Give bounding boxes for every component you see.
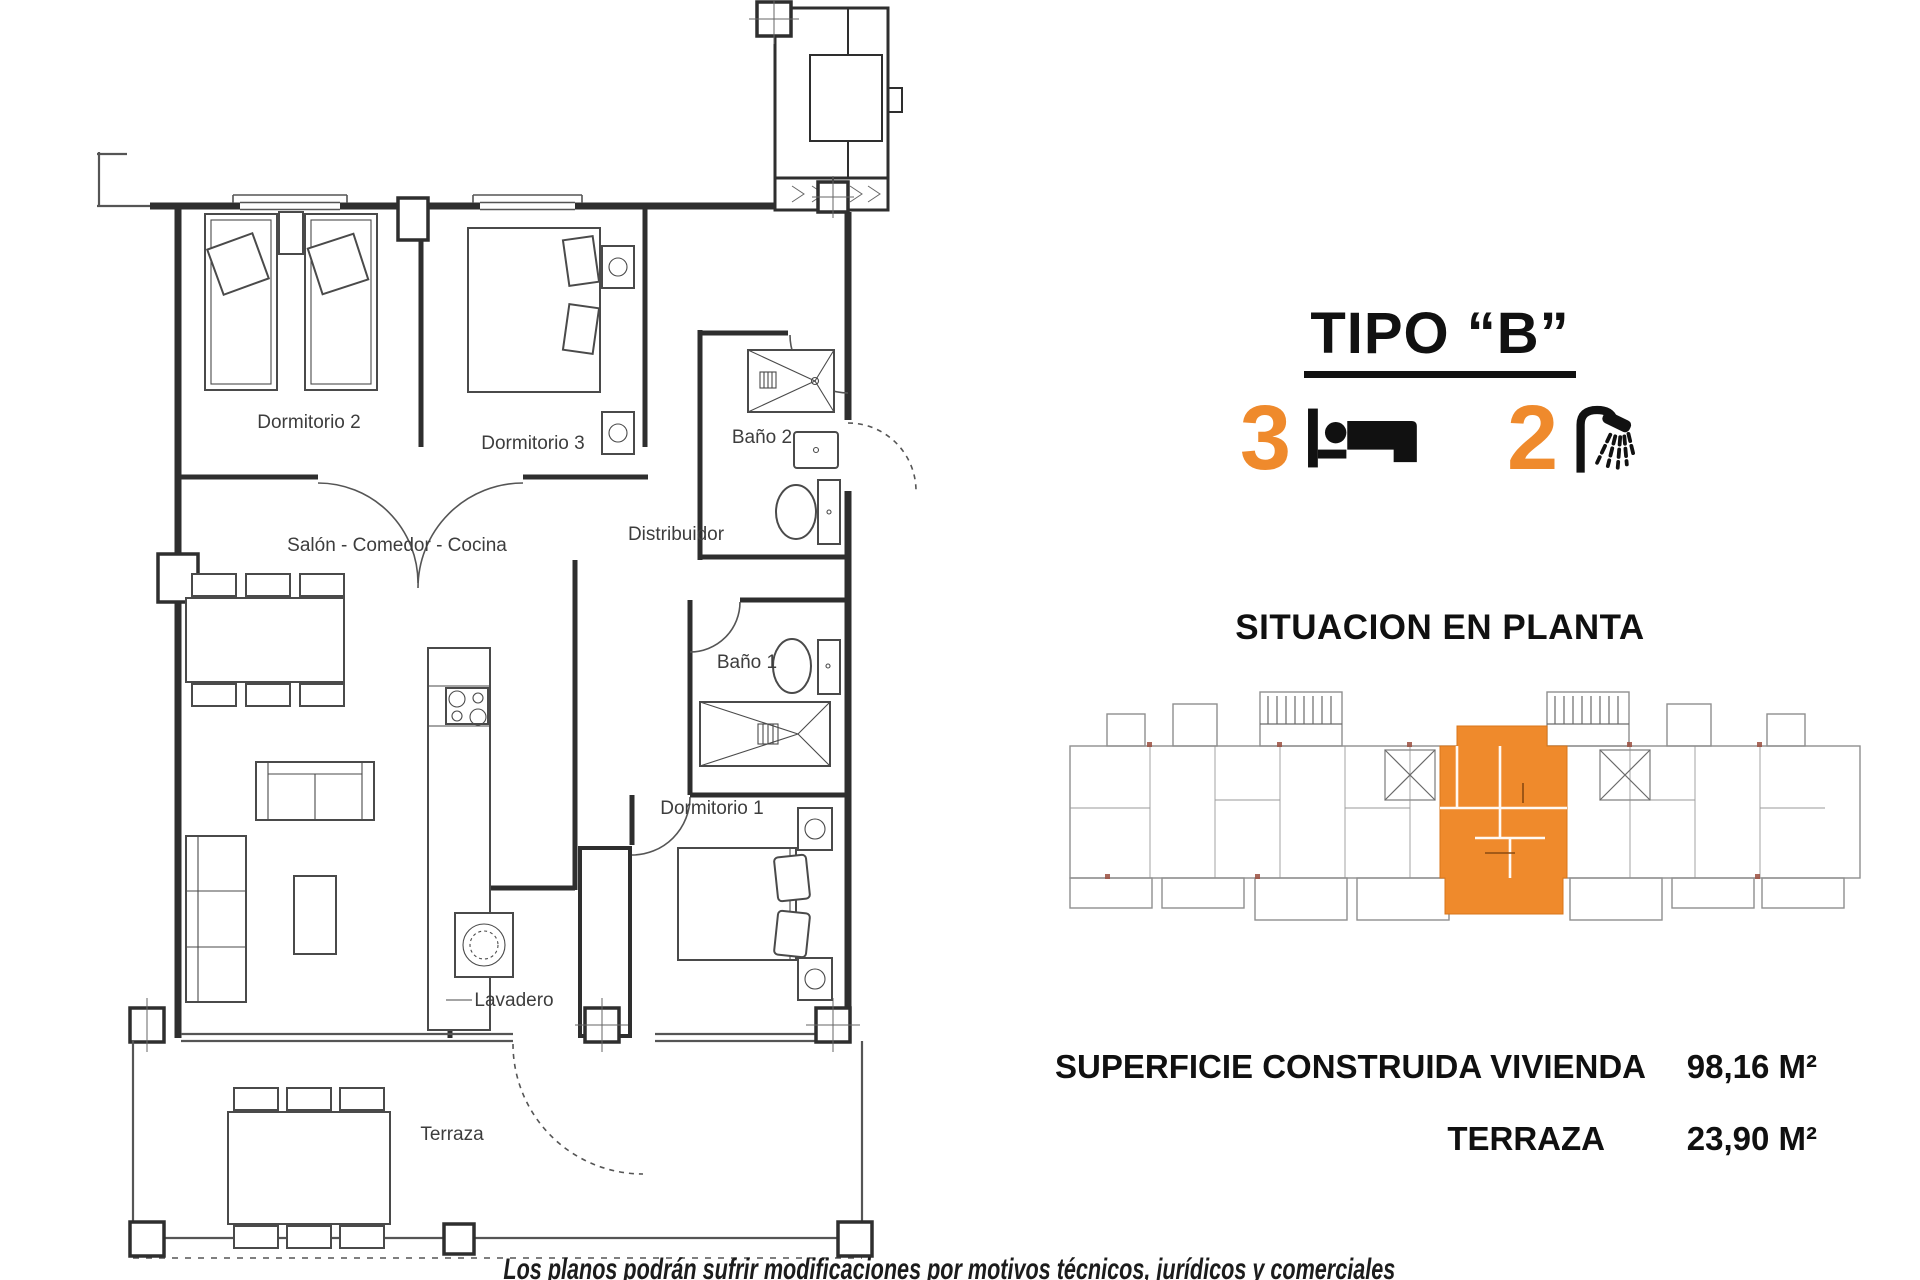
terrace-table	[228, 1112, 390, 1224]
toilet-tank	[818, 640, 840, 694]
surface-row-vivienda: SUPERFICIE CONSTRUIDA VIVIENDA 98,16 M²	[1055, 1048, 1817, 1086]
legal-disclaimer: Los planos podrán sufrir modificaciones …	[330, 1253, 1240, 1280]
shower-tray	[700, 702, 830, 766]
entrance-door-swing	[848, 423, 916, 491]
situacion-plan	[1055, 688, 1875, 953]
surface-value: 23,90 M²	[1605, 1120, 1817, 1158]
shower-tray	[748, 350, 834, 412]
column-dots	[1105, 742, 1762, 879]
pillow	[774, 910, 810, 957]
dormitorio3-furniture	[468, 228, 634, 454]
room-label-terraza: Terraza	[420, 1124, 484, 1145]
nightstand	[602, 246, 634, 288]
toilet-bowl	[773, 639, 811, 693]
shower-icon	[1574, 400, 1640, 476]
room-label-dormitorio1: Dormitorio 1	[660, 798, 763, 819]
bathrooms-count: 2	[1507, 392, 1558, 484]
room-label-lavadero: Lavadero	[474, 990, 553, 1011]
bedrooms-count: 3	[1240, 392, 1291, 484]
situacion-heading: SITUACION EN PLANTA	[1060, 608, 1820, 648]
bed-icon	[1307, 405, 1425, 471]
legal-disclaimer-text: Los planos podrán sufrir modificaciones …	[503, 1253, 1395, 1280]
nightstand	[798, 958, 832, 1000]
nightstand	[279, 212, 303, 254]
floorplan-sheet: Dormitorio 2 Dormitorio 3 Baño 2 Distrib…	[0, 0, 1920, 1280]
unit-type-title-wrap: TIPO “B”	[1060, 300, 1820, 378]
washing-machine	[455, 913, 513, 977]
room-label-salon: Salón - Comedor - Cocina	[287, 535, 507, 556]
surface-label: TERRAZA	[1447, 1120, 1605, 1158]
toilet-tank	[818, 480, 840, 544]
highlighted-unit	[1440, 726, 1567, 914]
room-label-bano2: Baño 2	[732, 427, 792, 448]
surface-areas: SUPERFICIE CONSTRUIDA VIVIENDA 98,16 M² …	[1055, 1048, 1817, 1192]
surface-value: 98,16 M²	[1646, 1048, 1817, 1086]
unit-stats: 3 2	[1060, 392, 1820, 484]
room-label-dormitorio3: Dormitorio 3	[481, 433, 584, 454]
nightstand	[798, 808, 832, 850]
unit-type-title: TIPO “B”	[1304, 300, 1575, 378]
room-label-distribuidor: Distribuidor	[628, 524, 725, 545]
room-label-dormitorio2: Dormitorio 2	[257, 412, 360, 433]
terraza	[130, 1041, 872, 1258]
surface-row-terraza: TERRAZA 23,90 M²	[1055, 1120, 1817, 1158]
sink	[794, 432, 838, 468]
bathrooms-stat: 2	[1507, 392, 1640, 484]
sectional-sofa	[186, 836, 246, 1002]
pillow	[563, 304, 599, 354]
salon-furniture	[186, 574, 374, 1002]
nightstand	[602, 412, 634, 454]
bedrooms-stat: 3	[1240, 392, 1425, 484]
pillow	[563, 236, 599, 286]
terrace-door-swing	[513, 1044, 643, 1174]
dormitorio1-furniture	[678, 808, 832, 1000]
pillow	[774, 854, 810, 901]
surface-label: SUPERFICIE CONSTRUIDA VIVIENDA	[1055, 1048, 1646, 1086]
apartment-floorplan: Dormitorio 2 Dormitorio 3 Baño 2 Distrib…	[0, 0, 960, 1280]
dining-table	[186, 598, 344, 682]
toilet-bowl	[776, 485, 816, 539]
room-label-bano1: Baño 1	[717, 652, 777, 673]
stair-core	[749, 0, 902, 218]
coffee-table	[294, 876, 336, 954]
dormitorio2-furniture	[205, 212, 377, 390]
